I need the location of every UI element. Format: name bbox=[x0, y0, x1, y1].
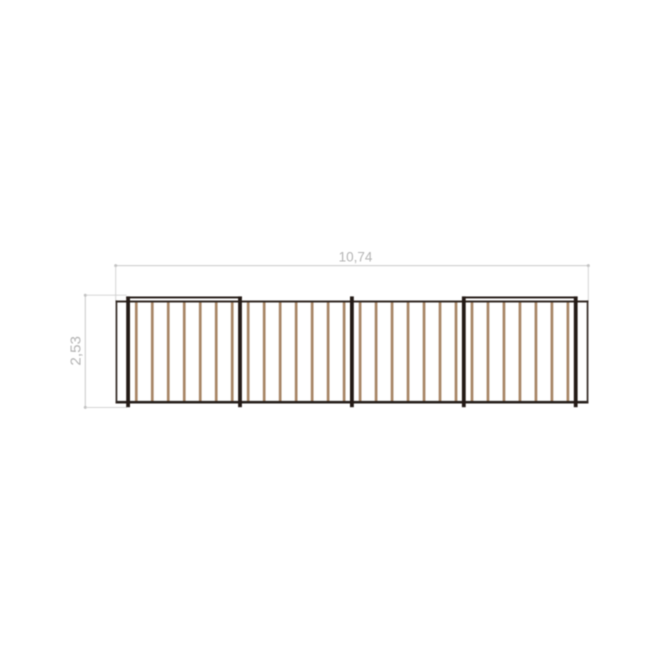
svg-text:10,74: 10,74 bbox=[339, 249, 373, 264]
svg-text:2,53: 2,53 bbox=[68, 336, 85, 366]
